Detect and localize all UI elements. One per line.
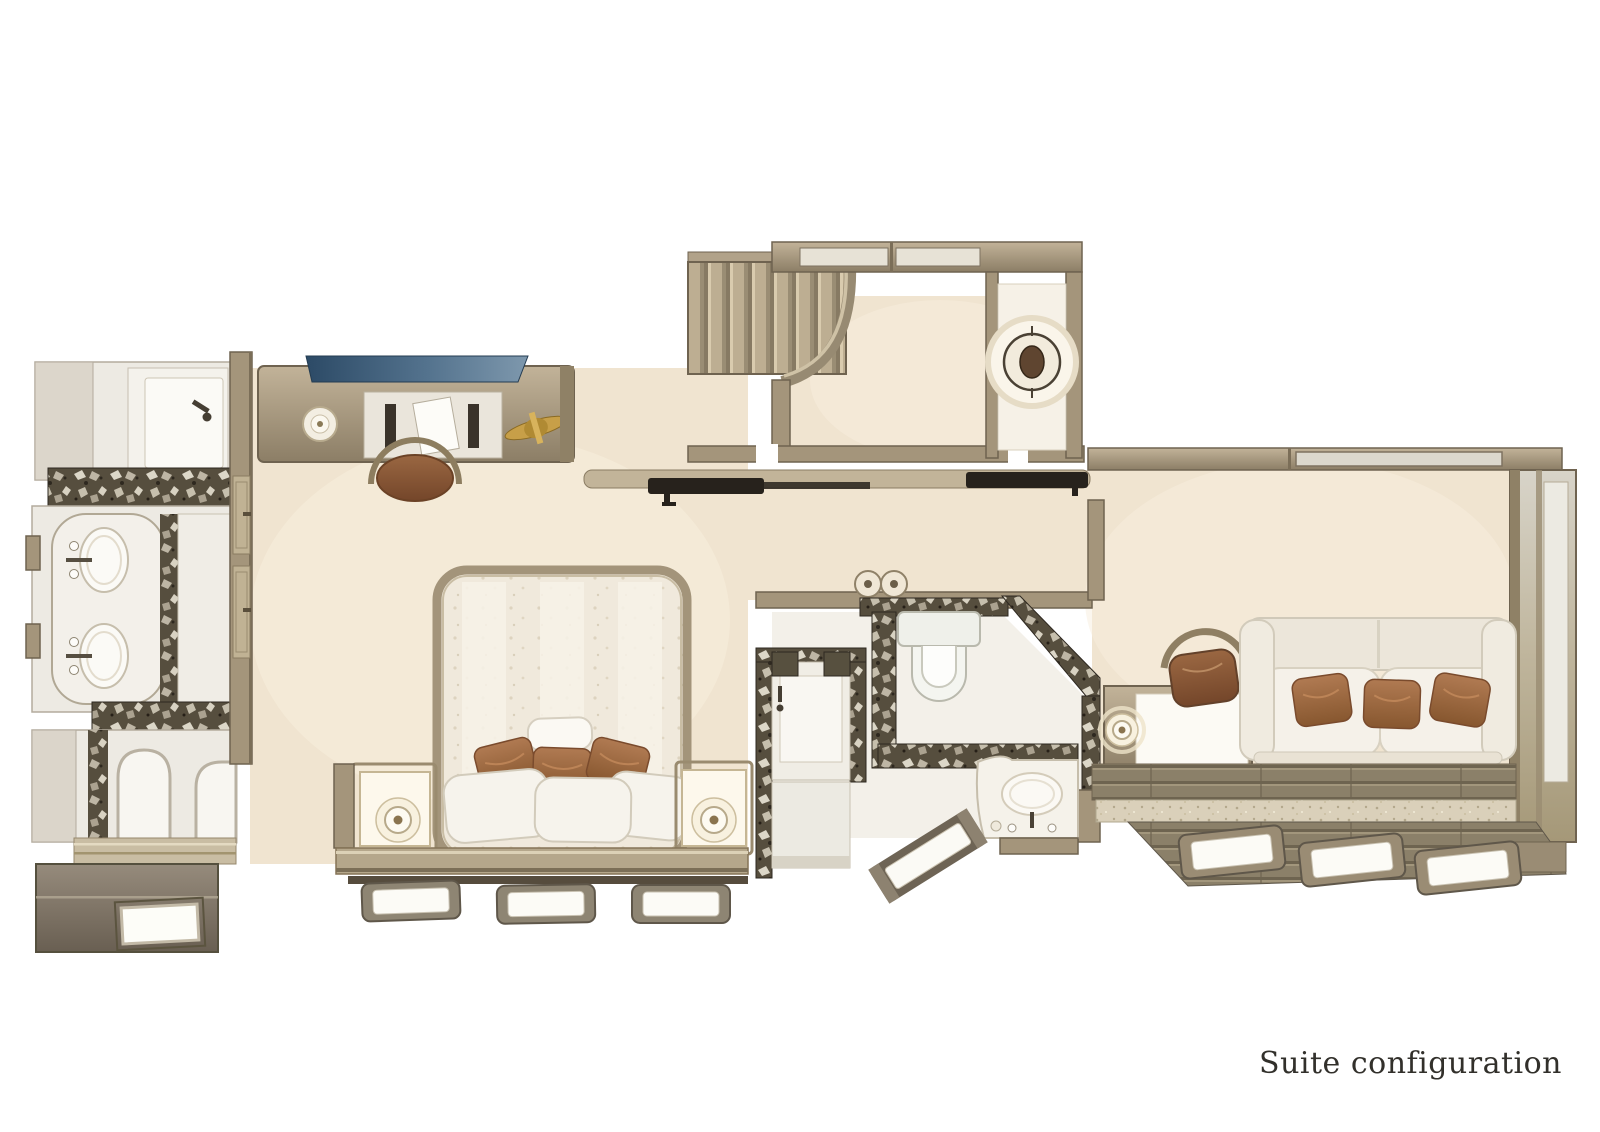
dark-floor-room [36, 864, 218, 952]
dressing-console [258, 356, 574, 462]
living-north-wall [1088, 448, 1562, 470]
wc-room [32, 730, 236, 864]
shower-room [35, 362, 232, 480]
west-wall-stub [1088, 500, 1104, 600]
vestibule [986, 272, 1082, 458]
marble-wall-strip [88, 730, 108, 842]
accent-pillow [1428, 672, 1491, 729]
glass-panel [1544, 482, 1568, 782]
console-lamp [303, 407, 337, 441]
sofa-arm [1240, 620, 1274, 760]
living-window [1414, 841, 1522, 896]
clerestory-window [1296, 452, 1502, 466]
window-glass-strip [306, 356, 528, 382]
accent-pillow [1363, 679, 1421, 729]
vanity-walkway [178, 514, 234, 704]
arched-alcove [196, 762, 236, 842]
transom-window [896, 248, 980, 266]
suite-floorplan [0, 0, 1600, 1132]
marble-wall [756, 648, 772, 878]
deck-band [1092, 764, 1516, 800]
faucet-icon [1030, 812, 1034, 828]
console-end-cap [560, 366, 574, 462]
entry-north-wall [772, 242, 1082, 272]
nightstand-left [352, 764, 436, 854]
guest-vanity [977, 756, 1078, 838]
guest-shower [772, 652, 850, 868]
marble-wall-strip [160, 514, 178, 704]
shower-entry-floor [772, 782, 850, 868]
double-vanity-room [26, 506, 238, 712]
accent-pillow [1291, 672, 1353, 727]
white-pillow [534, 777, 631, 843]
shower-head-icon [778, 686, 782, 702]
glass-wall-east [1510, 470, 1576, 842]
deck-light-band [1096, 800, 1516, 822]
bedroom-window [497, 884, 596, 924]
suite-floorplan-page: Suite configuration [0, 0, 1600, 1132]
wall-tab [26, 536, 40, 570]
caption: Suite configuration [1259, 1046, 1562, 1081]
guest-bathroom [756, 596, 1100, 904]
transom-window [800, 248, 888, 266]
faucet-icon [66, 654, 92, 658]
nightstand-right [676, 762, 752, 854]
bed [437, 570, 691, 860]
marble-wall [850, 662, 866, 782]
bedroom-window [632, 885, 730, 923]
vanity-ledge [74, 838, 236, 864]
head-pillow [527, 717, 592, 751]
bedroom-window [361, 880, 460, 921]
wardrobe-door [233, 566, 251, 658]
master-bathroom [26, 362, 238, 952]
living-window [1178, 825, 1286, 880]
wall-tab [26, 624, 40, 658]
bedroom-west-wall [230, 352, 252, 764]
sofa [1240, 618, 1516, 764]
living-window [1298, 833, 1406, 888]
faucet-icon [66, 558, 92, 562]
arched-alcove [118, 750, 170, 842]
round-table [988, 318, 1076, 406]
wardrobe-door [233, 476, 251, 554]
vanity-base [1000, 838, 1078, 854]
